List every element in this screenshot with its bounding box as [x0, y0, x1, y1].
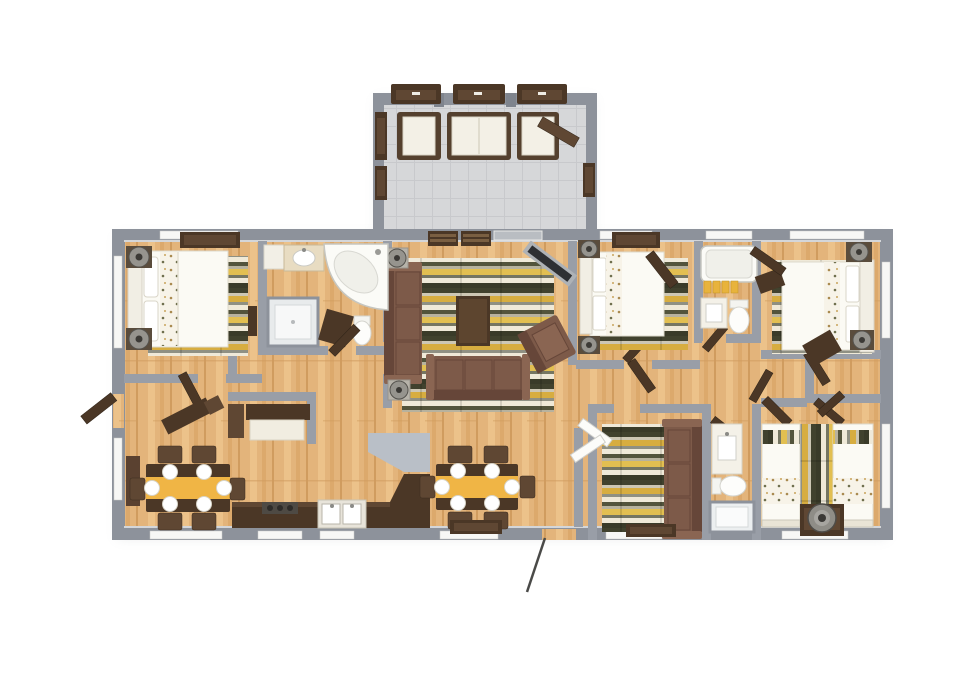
nightstand-lamp-center [818, 514, 826, 522]
vanity-sink [706, 304, 722, 322]
plate [163, 465, 178, 480]
media-console [428, 231, 458, 246]
dining-chair [192, 513, 216, 530]
plate [485, 464, 500, 479]
sofa-arm [662, 419, 702, 427]
window [114, 256, 122, 348]
porch-side-bench-seat [377, 170, 385, 196]
window [258, 531, 302, 539]
plate [197, 465, 212, 480]
bench-cushion-dash [538, 92, 546, 95]
sofa-cushion [396, 272, 420, 305]
twin-bed-floral [762, 478, 800, 504]
media-console-slat [430, 239, 456, 242]
sofa-cushion [465, 360, 492, 390]
wall [694, 334, 702, 343]
burner [287, 505, 293, 511]
window [320, 531, 354, 539]
window [882, 262, 890, 338]
wall [726, 334, 761, 343]
side-cabinet [228, 404, 244, 438]
dining-chair [448, 446, 472, 463]
sofa-arm [426, 354, 434, 400]
media-bench-top [630, 527, 672, 534]
storage-bench-top [454, 523, 498, 531]
burner [277, 505, 283, 511]
sofa-cushion [668, 430, 690, 462]
coffee-table-top [459, 299, 487, 343]
plate [435, 480, 450, 495]
vanity-sink [293, 250, 315, 266]
bed-floral-band [606, 253, 622, 335]
media-console-slat [463, 239, 489, 242]
plate [163, 497, 178, 512]
floor-plan-page [0, 0, 960, 679]
towel [722, 281, 729, 293]
nightstand-lamp-center [136, 254, 143, 261]
plate [145, 481, 160, 496]
sofa-cushion [494, 360, 521, 390]
window [882, 424, 890, 508]
nightstand-lamp-center [136, 336, 143, 343]
sofa-cushion [396, 307, 420, 340]
dining-chair [158, 513, 182, 530]
porch-side-bench-seat [377, 118, 385, 154]
front-door-swing [527, 538, 545, 592]
dresser-top [184, 235, 236, 245]
towel [713, 281, 720, 293]
bed-headboard [580, 254, 592, 334]
wall [576, 360, 624, 369]
window [790, 231, 864, 239]
porch [373, 84, 597, 235]
twin-bed-footboard [762, 520, 800, 527]
wall [652, 360, 700, 369]
plate [451, 496, 466, 511]
nightstand-lamp-center [856, 249, 862, 255]
plate [505, 480, 520, 495]
table-lamp-center [396, 387, 402, 393]
towel [704, 281, 711, 293]
shower-tray [716, 507, 748, 527]
vanity-sink [718, 436, 736, 460]
sofa-cushion [396, 342, 420, 375]
plate [217, 481, 232, 496]
bed-floral-band [160, 252, 178, 346]
nightstand-lamp-center [859, 337, 865, 343]
toilet-bowl [720, 476, 746, 496]
faucet [330, 504, 334, 508]
plate [485, 496, 500, 511]
faucet [350, 504, 354, 508]
floor-plan-canvas [0, 0, 960, 679]
shower-drain [291, 320, 295, 324]
dining-chair [420, 476, 435, 498]
bench-cushion-dash [474, 92, 482, 95]
porch-armchair-cushion [403, 117, 435, 155]
dining-chair [230, 478, 245, 500]
plate [451, 464, 466, 479]
tub-faucet [375, 249, 381, 255]
burner [267, 505, 273, 511]
table-lamp-center [394, 255, 400, 261]
wall [574, 428, 583, 527]
towel [731, 281, 738, 293]
plate [197, 497, 212, 512]
nightstand-lamp-center [586, 246, 592, 252]
bathtub-basin [706, 250, 752, 278]
twin-bed-floral [833, 478, 873, 504]
nightstand-lamp-center [586, 342, 592, 348]
dining-chair [158, 446, 182, 463]
sofa-bottom-back [432, 390, 522, 400]
sofa-cushion [668, 464, 690, 496]
bed-pillow [593, 296, 606, 330]
sofa-cushion [436, 360, 463, 390]
bed-pillow [846, 266, 859, 302]
vanity-faucet [725, 432, 729, 436]
media-console-slat [430, 234, 456, 237]
dresser-top [616, 235, 656, 245]
upper-counter [250, 420, 304, 440]
window [114, 438, 122, 500]
sofa-arm [522, 354, 530, 400]
porch-side-bench-seat [585, 167, 593, 193]
toilet-bowl [729, 307, 749, 333]
dining-chair [520, 476, 535, 498]
wall [640, 404, 708, 413]
living-room [384, 231, 577, 412]
porch-pillar [506, 93, 516, 107]
media-console-slat [463, 234, 489, 237]
vanity-faucet [302, 248, 306, 252]
twin-rug [799, 424, 833, 506]
media-console [461, 231, 491, 246]
vanity-cabinet [264, 245, 284, 269]
twin-bed-blanket [762, 430, 800, 444]
twin-bed-blanket [833, 430, 873, 444]
bench-cushion-dash [412, 92, 420, 95]
window [706, 231, 752, 239]
patio-slider-door [494, 231, 542, 240]
wall [228, 392, 316, 401]
side-door-panel [81, 393, 117, 424]
window [150, 531, 222, 539]
sofa-back [692, 424, 702, 532]
dining-chair [130, 478, 145, 500]
dining-chair [484, 446, 508, 463]
front-door-opening [542, 529, 576, 540]
bed-pillow [593, 258, 606, 292]
upper-cabinet [246, 404, 310, 420]
bedroom-twin [762, 424, 873, 536]
dining-chair [192, 446, 216, 463]
